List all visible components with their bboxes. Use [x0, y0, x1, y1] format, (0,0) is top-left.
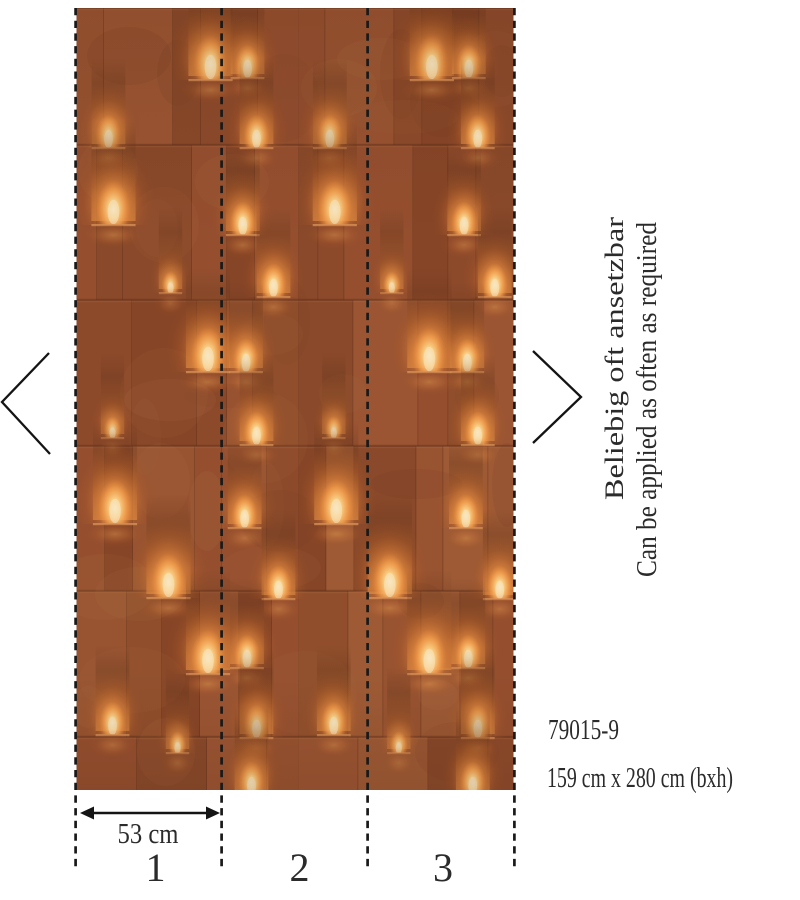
svg-text:Beliebig oft ansetzbar: Beliebig oft ansetzbar	[600, 217, 629, 500]
svg-text:3: 3	[433, 845, 453, 890]
svg-text:Can be applied as often as req: Can be applied as often as required	[631, 222, 663, 577]
svg-text:159 cm x 280 cm (bxh): 159 cm x 280 cm (bxh)	[547, 763, 733, 794]
svg-text:79015-9: 79015-9	[548, 715, 619, 746]
svg-text:1: 1	[146, 845, 166, 890]
svg-text:2: 2	[290, 845, 310, 890]
